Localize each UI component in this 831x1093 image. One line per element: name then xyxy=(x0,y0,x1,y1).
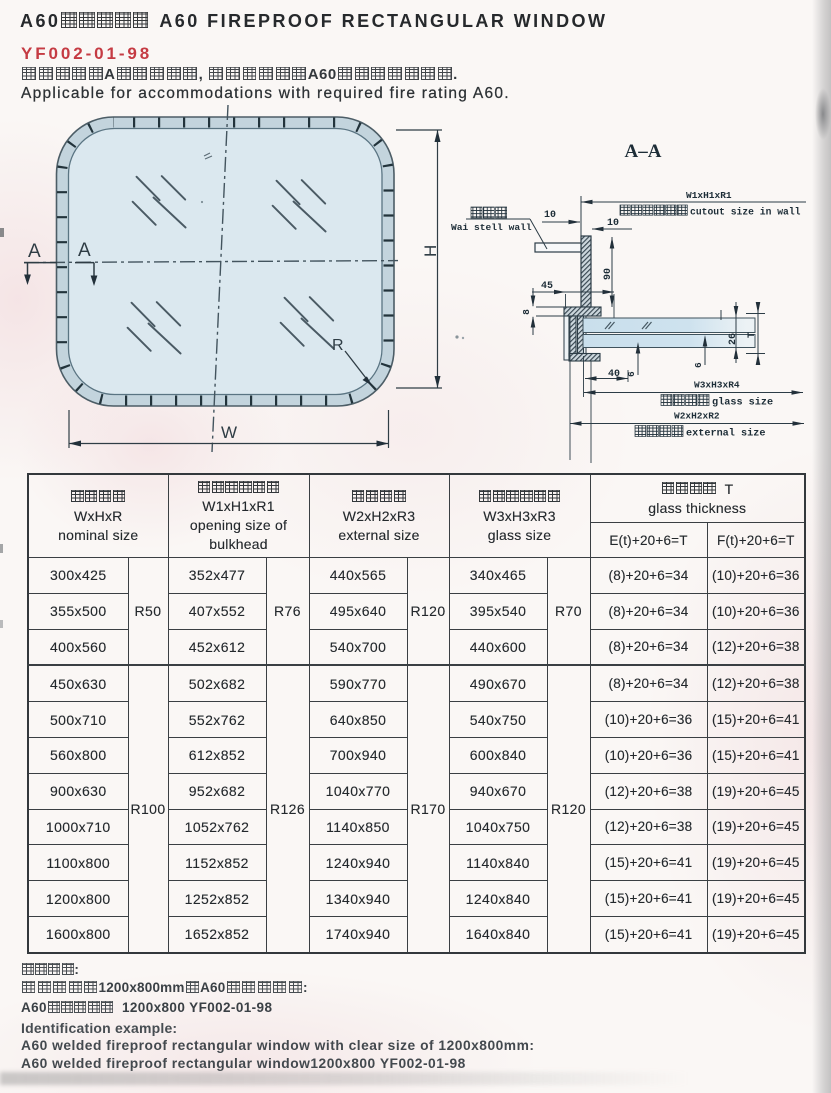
svg-text:R: R xyxy=(332,337,344,354)
svg-text:W3xH3xR4: W3xH3xR4 xyxy=(694,380,740,391)
svg-text:Wai stell wall: Wai stell wall xyxy=(451,222,532,233)
svg-text:6: 6 xyxy=(626,371,637,377)
svg-text:90: 90 xyxy=(603,268,614,280)
svg-text:A: A xyxy=(28,241,41,262)
svg-text:10: 10 xyxy=(544,210,556,221)
svg-text:cutout size in wall: cutout size in wall xyxy=(690,207,801,218)
svg-text:W: W xyxy=(221,423,237,442)
svg-text:10: 10 xyxy=(607,218,619,229)
svg-text:W1xH1xR1: W1xH1xR1 xyxy=(686,190,732,201)
svg-text:W2xH2xR2: W2xH2xR2 xyxy=(674,411,720,422)
svg-text:40: 40 xyxy=(608,369,620,380)
svg-text:H: H xyxy=(421,245,440,257)
svg-text:6: 6 xyxy=(693,362,704,368)
svg-text:45: 45 xyxy=(541,281,553,292)
svg-text:T: T xyxy=(747,332,758,338)
svg-text:A: A xyxy=(78,240,91,261)
svg-text:8: 8 xyxy=(521,309,532,315)
svg-text:external size: external size xyxy=(686,428,765,440)
svg-text:A–A: A–A xyxy=(625,141,662,162)
svg-text:glass size: glass size xyxy=(712,397,773,409)
svg-text:26: 26 xyxy=(728,333,739,345)
